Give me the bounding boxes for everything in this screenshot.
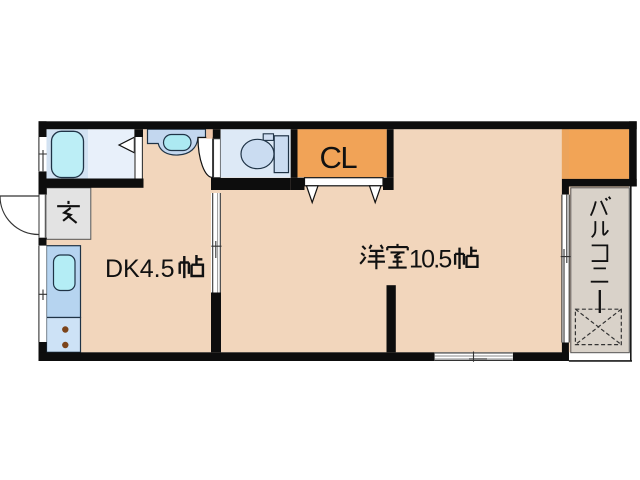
svg-text:DK4.5: DK4.5: [105, 255, 174, 283]
svg-text:CL: CL: [320, 140, 358, 175]
svg-text:10.5: 10.5: [409, 246, 451, 274]
